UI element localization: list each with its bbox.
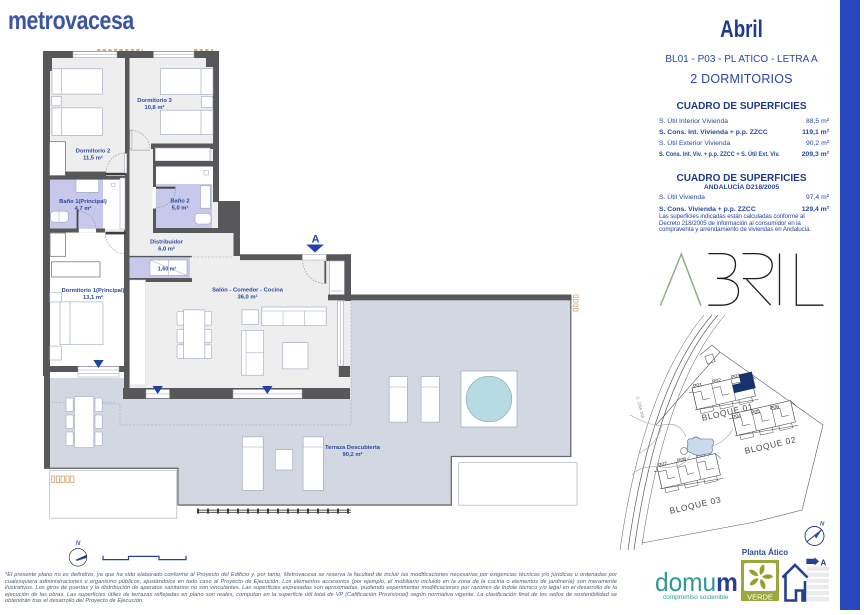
svg-text:N: N <box>820 522 825 528</box>
svg-text:36,0 m²: 36,0 m² <box>238 294 258 301</box>
svg-text:BLOQUE 03: BLOQUE 03 <box>669 494 723 516</box>
svg-text:Dormitorio 2: Dormitorio 2 <box>76 149 110 155</box>
svg-text:10,8 m²: 10,8 m² <box>145 104 165 111</box>
svg-text:1,60 m²: 1,60 m² <box>158 267 177 273</box>
svg-text:Terraza Descubierta: Terraza Descubierta <box>325 445 381 451</box>
svg-text:Baño 1(Principal): Baño 1(Principal) <box>59 199 107 205</box>
svg-text:A: A <box>312 234 320 246</box>
svg-text:5,0 m²: 5,0 m² <box>172 205 189 212</box>
svg-text:Baño 2: Baño 2 <box>170 199 189 205</box>
svg-text:Dormitorio 1(Principal): Dormitorio 1(Principal) <box>62 288 125 294</box>
svg-text:A: A <box>821 559 827 568</box>
svg-text:11,5 m²: 11,5 m² <box>83 155 103 162</box>
svg-text:4,7 m²: 4,7 m² <box>75 205 92 212</box>
svg-text:Distribuidor: Distribuidor <box>150 240 184 246</box>
svg-text:VERDE: VERDE <box>747 593 773 602</box>
svg-text:Dormitorio 3: Dormitorio 3 <box>137 98 172 104</box>
svg-text:6,0 m²: 6,0 m² <box>158 246 175 253</box>
svg-text:N: N <box>76 540 81 547</box>
svg-text:BLOQUE 02: BLOQUE 02 <box>744 434 798 456</box>
svg-text:13,1 m²: 13,1 m² <box>83 294 103 301</box>
svg-text:C. DÑA 366: C. DÑA 366 <box>635 396 646 419</box>
svg-text:Salón - Comedor - Cocina: Salón - Comedor - Cocina <box>212 288 284 294</box>
svg-text:90,2 m²: 90,2 m² <box>343 451 363 458</box>
